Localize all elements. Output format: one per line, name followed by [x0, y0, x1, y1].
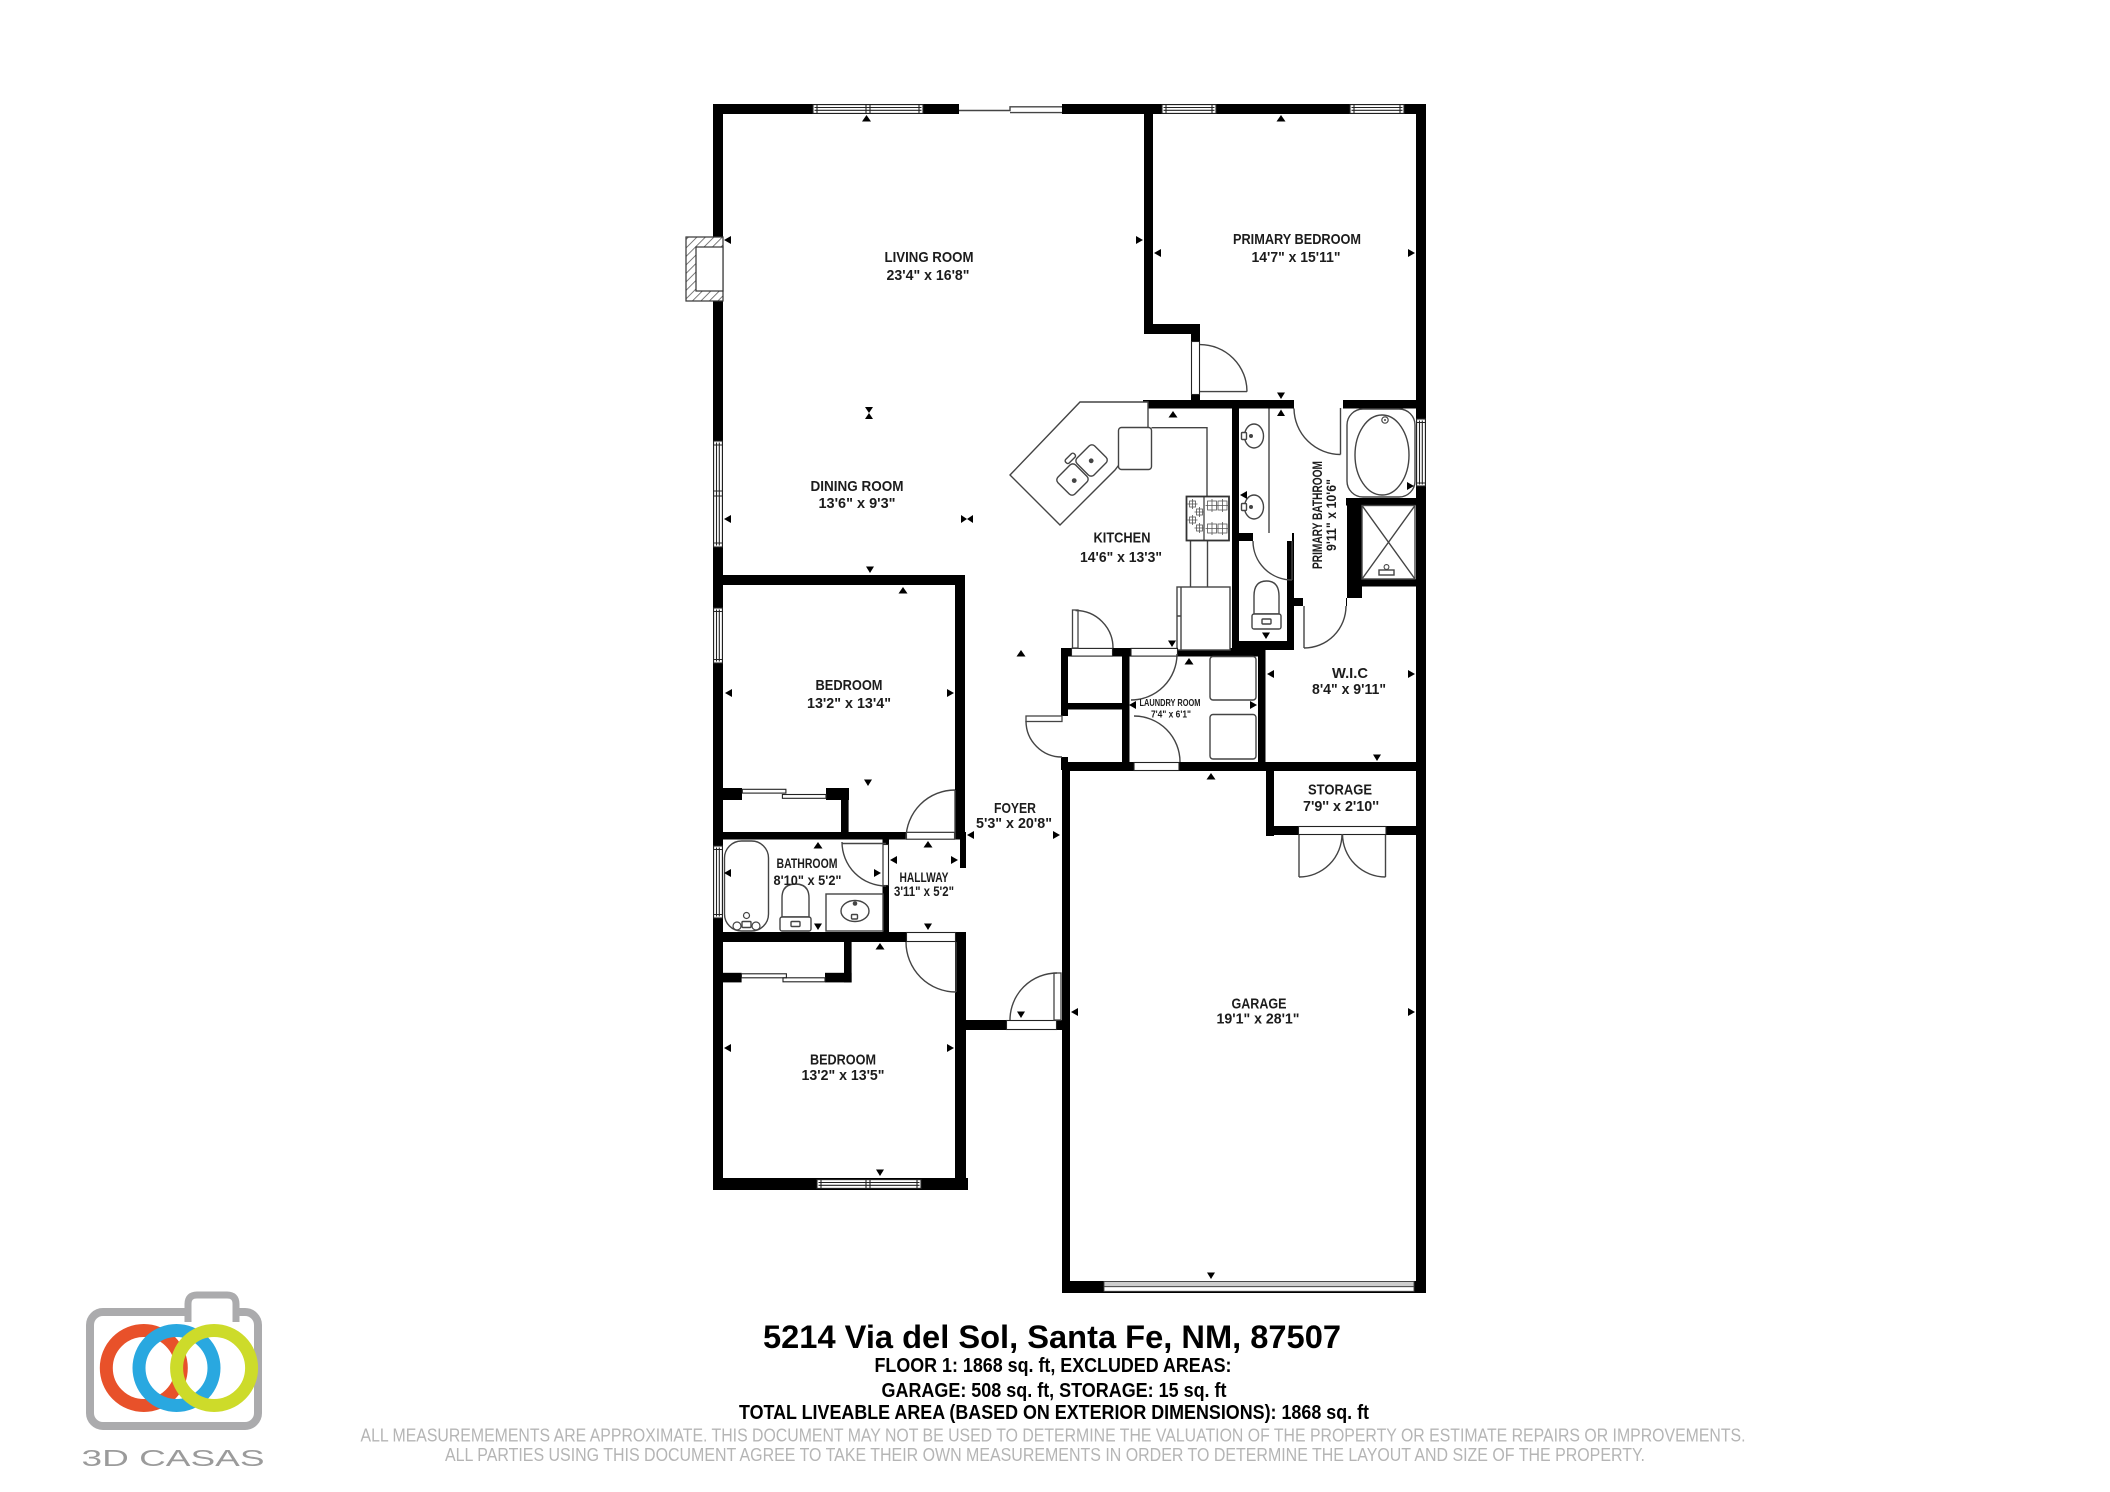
svg-text:LIVING ROOM: LIVING ROOM — [885, 249, 974, 266]
svg-text:8'4" x 9'11": 8'4" x 9'11" — [1312, 681, 1386, 698]
svg-text:BEDROOM: BEDROOM — [810, 1052, 876, 1069]
svg-text:8'10" x 5'2": 8'10" x 5'2" — [774, 873, 842, 888]
svg-text:ALL MEASUREMEMENTS ARE APPROXI: ALL MEASUREMEMENTS ARE APPROXIMATE. THIS… — [361, 1425, 1746, 1446]
svg-text:PRIMARY BATHROOM: PRIMARY BATHROOM — [1310, 461, 1325, 569]
svg-text:STORAGE: STORAGE — [1308, 782, 1372, 799]
svg-text:PRIMARY BEDROOM: PRIMARY BEDROOM — [1233, 231, 1361, 248]
svg-text:13'6" x 9'3": 13'6" x 9'3" — [819, 495, 896, 512]
svg-text:GARAGE: 508 sq. ft, STORAGE: 1: GARAGE: 508 sq. ft, STORAGE: 15 sq. ft — [882, 1380, 1227, 1402]
svg-text:5214 Via del Sol, Santa Fe, NM: 5214 Via del Sol, Santa Fe, NM, 87507 — [763, 1319, 1341, 1355]
svg-text:3D CASAS: 3D CASAS — [82, 1445, 265, 1471]
svg-text:7'9'' x 2'10'': 7'9'' x 2'10'' — [1303, 798, 1379, 815]
svg-text:5'3" x 20'8": 5'3" x 20'8" — [976, 815, 1052, 832]
svg-text:3'11" x 5'2": 3'11" x 5'2" — [894, 884, 954, 899]
svg-text:13'2" x 13'4": 13'2" x 13'4" — [807, 695, 891, 712]
svg-text:BATHROOM: BATHROOM — [777, 856, 838, 871]
svg-text:DINING ROOM: DINING ROOM — [811, 478, 904, 495]
svg-text:14'6" x 13'3": 14'6" x 13'3" — [1080, 549, 1162, 566]
svg-text:FLOOR 1: 1868 sq. ft, EXCLUDED: FLOOR 1: 1868 sq. ft, EXCLUDED AREAS: — [875, 1355, 1232, 1377]
svg-text:HALLWAY: HALLWAY — [900, 870, 949, 885]
svg-text:LAUNDRY ROOM: LAUNDRY ROOM — [1140, 698, 1201, 709]
svg-text:KITCHEN: KITCHEN — [1094, 530, 1151, 547]
svg-text:TOTAL LIVEABLE AREA (BASED ON: TOTAL LIVEABLE AREA (BASED ON EXTERIOR D… — [739, 1402, 1369, 1424]
svg-text:ALL PARTIES USING THIS DOCUMEN: ALL PARTIES USING THIS DOCUMENT AGREE TO… — [445, 1444, 1645, 1465]
svg-text:19'1" x 28'1": 19'1" x 28'1" — [1217, 1011, 1300, 1028]
svg-text:14'7" x 15'11": 14'7" x 15'11" — [1252, 249, 1341, 266]
svg-text:9'11" x 10'6": 9'11" x 10'6" — [1324, 479, 1339, 551]
svg-text:7'4" x 6'1": 7'4" x 6'1" — [1151, 710, 1191, 721]
svg-text:BEDROOM: BEDROOM — [816, 677, 883, 694]
svg-text:23'4" x 16'8": 23'4" x 16'8" — [887, 267, 970, 284]
svg-text:W.I.C: W.I.C — [1332, 665, 1368, 682]
svg-text:13'2" x 13'5": 13'2" x 13'5" — [802, 1067, 885, 1084]
